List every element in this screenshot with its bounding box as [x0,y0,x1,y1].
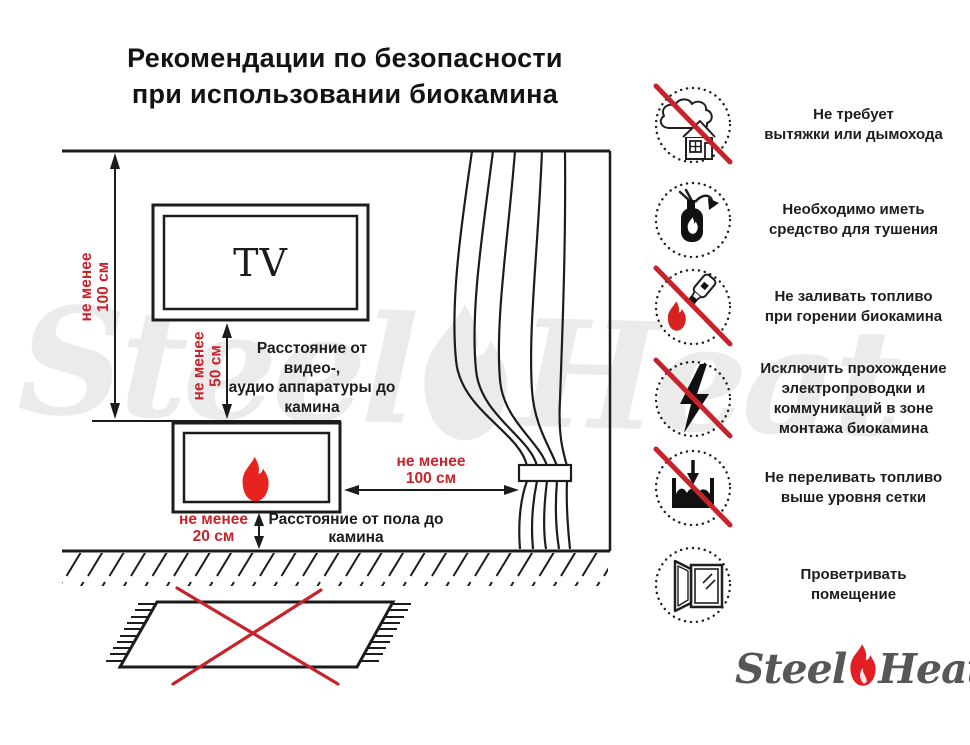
rule-no-chimney: Не требует вытяжки или дымохода [645,77,970,173]
dimension-floor-20cm: не менее 20 см [175,511,252,545]
logo-heat-text: Heat [878,649,970,690]
no-overfill-icon [645,440,741,536]
logo-steel-text: Steel [735,649,846,690]
rule-text: Проветривать помещение [741,565,970,605]
rule-text: Не требует вытяжки или дымохода [741,105,970,145]
prohibition-cross-icon [656,268,730,344]
label-av-distance: Расстояние от видео-, аудио аппаратуры д… [227,339,397,417]
rule-text: Не заливать топливо при горении биокамин… [741,287,970,327]
rule-ventilate: Проветривать помещение [645,537,970,633]
rule-no-overfill: Не переливать топливо выше уровня сетки [645,440,970,536]
rule-extinguisher: Необходимо иметь средство для тушения [645,172,970,268]
flame-icon [668,301,686,330]
floor-hatching [62,553,608,586]
page-title: Рекомендации по безопасности при использ… [10,40,680,112]
dimension-tv-50cm: не менее 50 см [191,319,225,414]
rule-text: Не переливать топливо выше уровня сетки [741,468,970,508]
steelheat-logo: Steel Heat [735,641,970,690]
extinguisher-icon [645,172,741,268]
no-chimney-icon [645,77,741,173]
dimension-wall-100cm: не менее 100 см [78,207,112,367]
flame-logo-icon [845,641,881,689]
prohibition-cross-icon [656,360,730,436]
rule-no-wiring: Исключить прохождение электропроводки и … [645,351,970,447]
rule-no-refuel-burning: Не заливать топливо при горении биокамин… [645,259,970,355]
label-floor-distance: Расстояние от пола до камина [266,511,446,546]
no-wiring-icon [645,351,741,447]
ventilate-icon [645,537,741,633]
dimension-curtain-100cm: не менее 100 см [356,453,506,487]
curtain-tie [519,465,571,481]
carpet [106,588,411,684]
title-line-1: Рекомендации по безопасности [10,40,680,76]
flame-watermark-icon [405,287,527,458]
tv-label: TV [153,205,368,321]
no-refuel-burning-icon [645,259,741,355]
carpet-cross-icon [173,588,338,684]
rule-text: Необходимо иметь средство для тушения [741,200,970,240]
title-line-2: при использовании биокамина [10,76,680,112]
fireplace-flame-icon [243,457,269,501]
rule-text: Исключить прохождение электропроводки и … [741,359,970,439]
biofireplace-safety-infographic: Steel Heat Рекомендации по безопасности … [0,0,970,745]
